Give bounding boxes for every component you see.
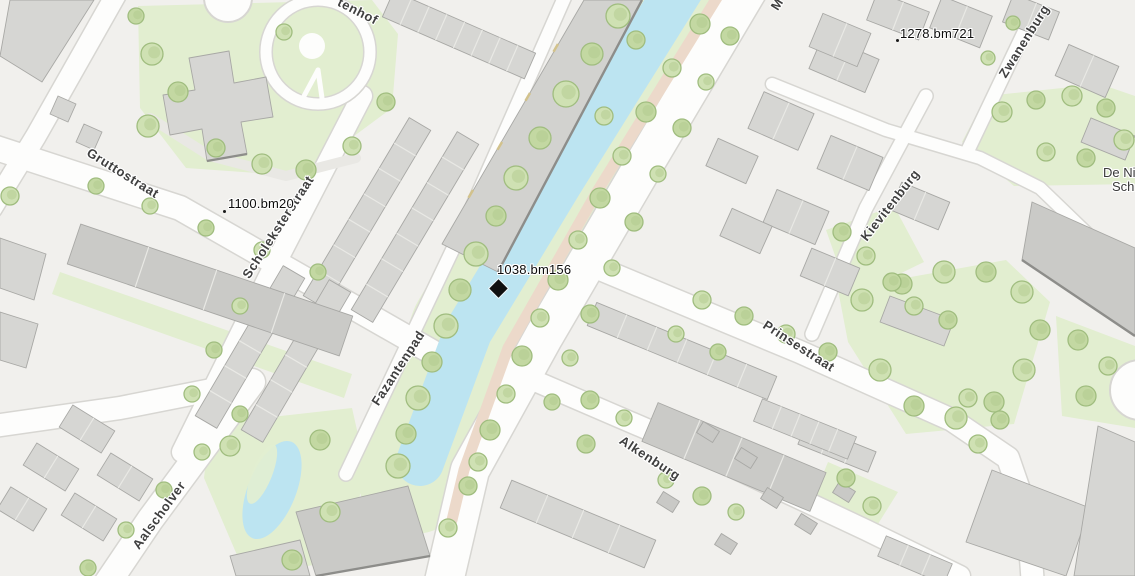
tree-icon [668,326,684,342]
tree-icon [650,166,666,182]
tree-icon [663,59,681,77]
tree-icon [207,139,225,157]
tree-icon [377,93,395,111]
benchmark-dot-icon[interactable] [896,39,899,42]
tree-icon [168,82,188,102]
tree-icon [636,102,656,122]
tree-icon [1037,143,1055,161]
tree-icon [933,261,955,283]
tree-icon [819,343,837,361]
tree-icon [581,391,599,409]
tree-icon [869,359,891,381]
tree-icon [320,502,340,522]
tree-icon [529,127,551,149]
tree-icon [698,74,714,90]
tree-icon [232,298,248,314]
tree-icon [232,406,248,422]
tree-icon [939,311,957,329]
tree-icon [310,430,330,450]
tree-icon [206,342,222,358]
tree-icon [434,314,458,338]
tree-icon [1099,357,1117,375]
tree-icon [1076,386,1096,406]
tree-icon [863,497,881,515]
tree-icon [1077,149,1095,167]
tree-icon [616,410,632,426]
tree-icon [396,424,416,444]
benchmark-dot-icon[interactable] [223,210,226,213]
tree-icon [721,27,739,45]
tree-icon [118,522,134,538]
tree-icon [184,386,200,402]
tree-icon [1097,99,1115,117]
tree-icon [857,247,875,265]
tree-icon [851,289,873,311]
tree-icon [992,102,1012,122]
tree-icon [673,119,691,137]
tree-icon [142,198,158,214]
tree-icon [945,407,967,429]
tree-icon [1,187,19,205]
tree-icon [504,166,528,190]
tree-icon [777,325,795,343]
tree-icon [981,51,995,65]
tree-icon [449,279,471,301]
tree-icon [1030,320,1050,340]
tree-icon [693,487,711,505]
tree-icon [544,394,560,410]
tree-icon [512,346,532,366]
tree-icon [386,454,410,478]
tree-icon [606,4,630,28]
tree-icon [1062,86,1082,106]
tree-icon [1011,281,1033,303]
tree-icon [553,81,579,107]
tree-icon [343,137,361,155]
tree-icon [969,435,987,453]
tree-icon [497,385,515,403]
tree-icon [88,178,104,194]
tree-icon [735,307,753,325]
tree-icon [548,270,568,290]
tree-icon [156,482,172,498]
tree-icon [581,305,599,323]
tree-icon [627,31,645,49]
tree-icon [577,435,595,453]
tree-icon [837,469,855,487]
tree-icon [1013,359,1035,381]
tree-icon [604,260,620,276]
tree-icon [282,550,302,570]
tree-icon [1114,130,1134,150]
tree-icon [198,220,214,236]
tree-icon [439,519,457,537]
tree-icon [625,213,643,231]
tree-icon [569,231,587,249]
tree-icon [276,24,292,40]
tree-icon [1027,91,1045,109]
tree-icon [613,147,631,165]
map-artwork [0,0,1135,576]
tree-icon [194,444,210,460]
tree-icon [904,396,924,416]
tree-icon [595,107,613,125]
tree-icon [406,386,430,410]
tree-icon [254,242,270,258]
tree-icon [693,291,711,309]
tree-icon [984,392,1004,412]
tree-icon [252,154,272,174]
tree-icon [480,420,500,440]
tree-icon [658,472,674,488]
tree-icon [220,436,240,456]
tree-icon [833,223,851,241]
tree-icon [562,350,578,366]
tree-icon [464,242,488,266]
tree-icon [710,344,726,360]
tree-icon [1068,330,1088,350]
tree-icon [310,264,326,280]
tree-icon [137,115,159,137]
tree-icon [976,262,996,282]
tree-icon [80,560,96,576]
tree-icon [690,14,710,34]
tree-icon [141,43,163,65]
tree-icon [296,160,316,180]
tree-icon [531,309,549,327]
tree-icon [728,504,744,520]
tree-icon [991,411,1009,429]
tree-icon [959,389,977,407]
tree-icon [581,43,603,65]
tree-icon [459,477,477,495]
map-canvas[interactable]: Gruttostraat Scholeksterstraat Fazantenp… [0,0,1135,576]
tree-icon [469,453,487,471]
tree-icon [422,352,442,372]
tree-icon [590,188,610,208]
tree-icon [1006,16,1020,30]
tree-icon [486,206,506,226]
tree-icon [128,8,144,24]
tree-icon [883,273,901,291]
tree-icon [905,297,923,315]
